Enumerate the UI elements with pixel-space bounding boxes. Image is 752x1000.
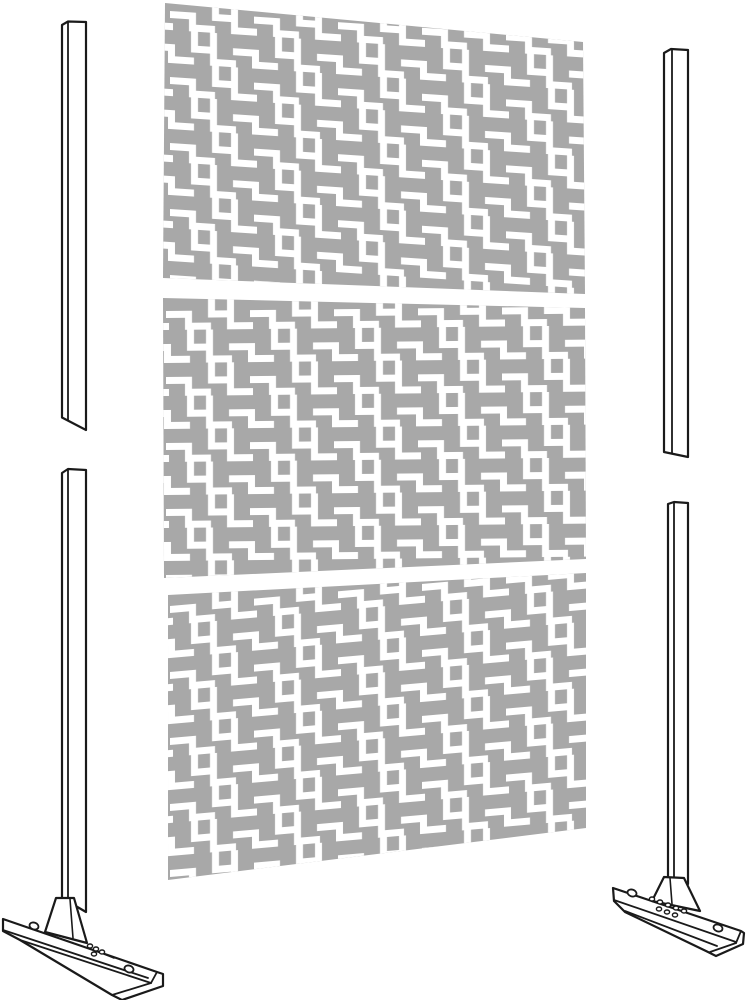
post-bottom-left bbox=[62, 469, 86, 912]
parts-diagram bbox=[0, 0, 752, 1000]
screen-panels bbox=[163, 3, 586, 880]
screen-panel-top bbox=[163, 3, 585, 294]
screen-panel-bottom bbox=[168, 573, 586, 880]
post-top-left bbox=[62, 22, 86, 431]
post-bottom-right bbox=[668, 502, 688, 884]
screen-panel-middle bbox=[163, 298, 586, 578]
post-top-right bbox=[664, 49, 688, 457]
diagram-canvas bbox=[0, 0, 752, 1000]
